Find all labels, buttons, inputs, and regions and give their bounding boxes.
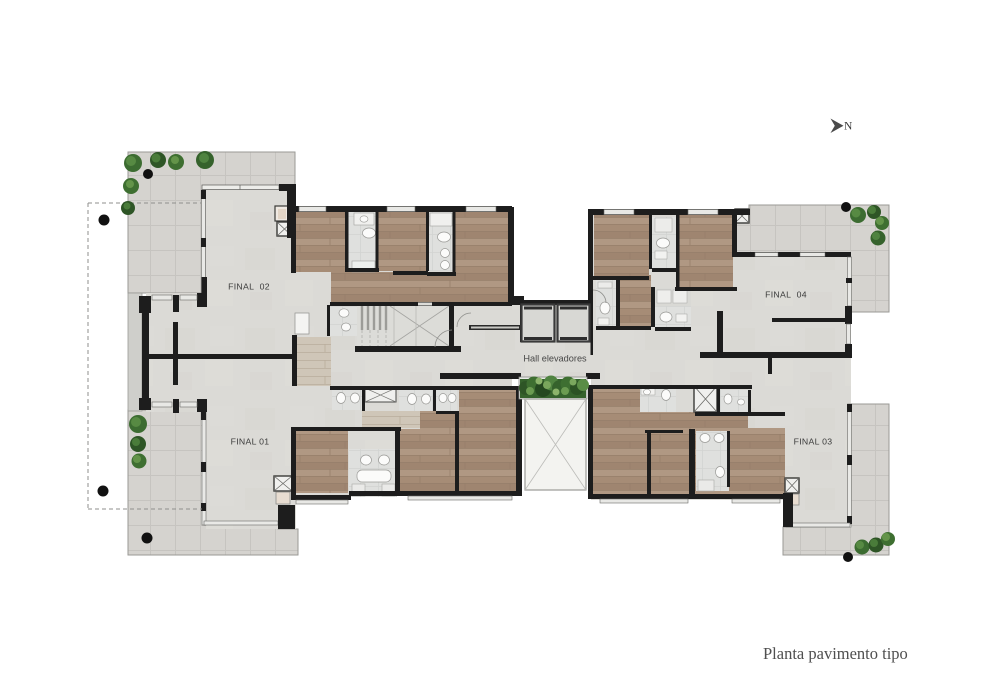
svg-text:N: N [844,121,853,133]
svg-text:Hall elevadores: Hall elevadores [523,354,587,364]
svg-text:Planta pavimento tipo: Planta pavimento tipo [763,644,908,663]
svg-text:FINAL 01: FINAL 01 [231,437,270,447]
svg-text:FINAL 03: FINAL 03 [794,437,833,447]
svg-text:FINAL 04: FINAL 04 [765,290,807,300]
svg-text:FINAL 02: FINAL 02 [228,282,270,292]
